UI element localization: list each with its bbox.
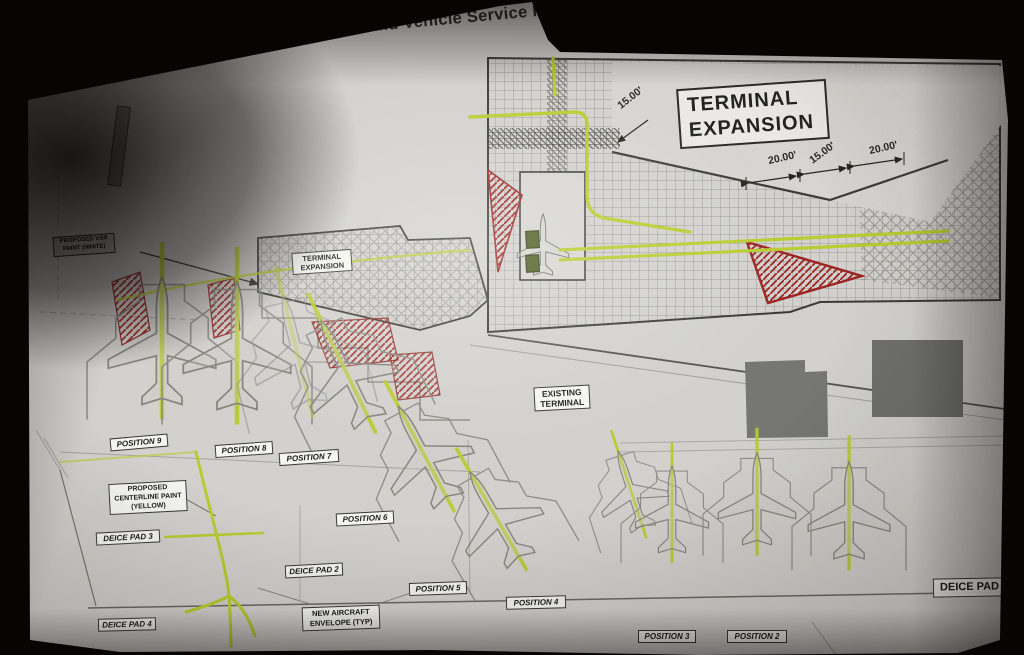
- centerline-note: PROPOSED CENTERLINE PAINT (YELLOW): [108, 480, 188, 515]
- title-separator: |: [248, 27, 254, 46]
- buildings: [745, 340, 963, 438]
- deice-pad-4-label: DEICE PAD 4: [98, 617, 156, 632]
- position-2-label: POSITION 2: [727, 630, 787, 643]
- projection-screen: Design Update|FINAL Apron and Vehicle Se…: [0, 0, 1024, 655]
- photo-of-projection: Design Update|FINAL Apron and Vehicle Se…: [0, 0, 1024, 655]
- terminal-expansion-main-label: TERMINAL EXPANSION: [676, 79, 830, 149]
- position-5-label: POSITION 5: [409, 581, 467, 596]
- site-plan-drawing: [0, 0, 1024, 655]
- position-3-label: POSITION 3: [638, 630, 696, 643]
- terminal-expansion-small-label: TERMINAL EXPANSION: [291, 249, 352, 275]
- existing-terminal-label: EXISTING TERMINAL: [533, 385, 590, 412]
- design-update-script-logo: Design Update: [53, 23, 240, 65]
- deice-pad-1-label: DEICE PAD: [933, 577, 1006, 597]
- position-4-label: POSITION 4: [506, 595, 566, 610]
- envelope-note: NEW AIRCRAFT ENVELOPE (TYP): [302, 605, 381, 631]
